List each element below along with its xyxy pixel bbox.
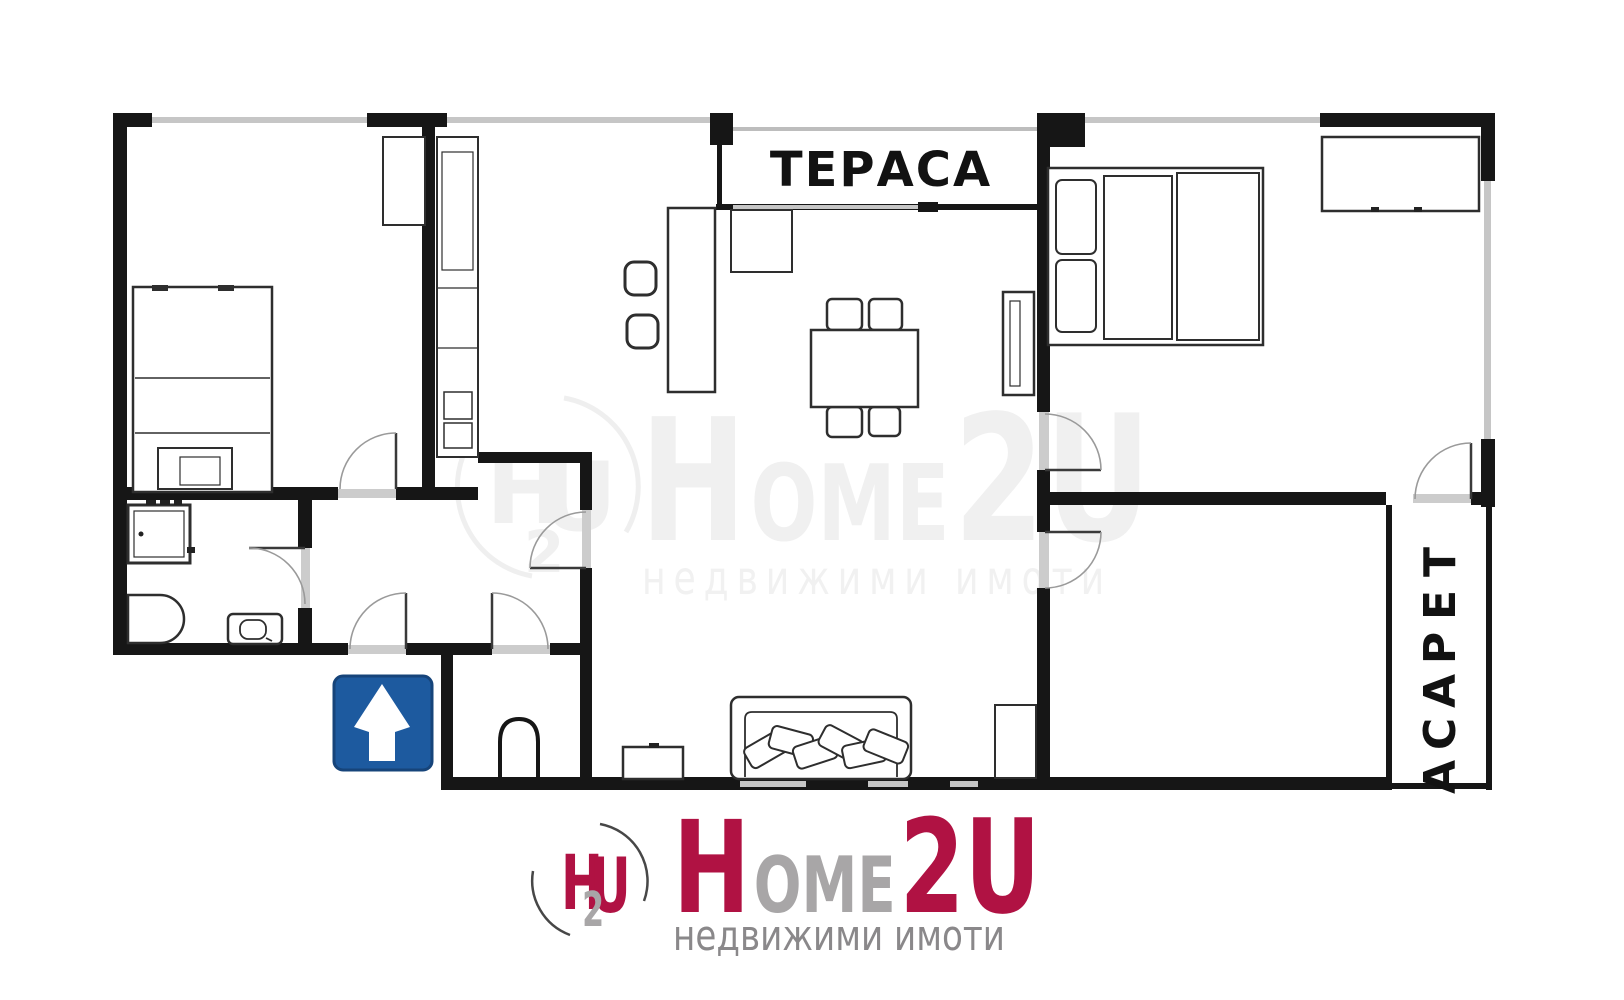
brand-logo: H U 2 H OME 2U недвижими имоти [532, 791, 1040, 960]
wall-top-seg2 [367, 113, 447, 127]
terrace-right-wall-left [1386, 505, 1392, 790]
logo-mark: H U 2 [532, 824, 647, 938]
wall-terrace-door-block [1471, 492, 1493, 505]
wall-bath-bottom [113, 643, 348, 655]
svg-text:Р: Р [1415, 632, 1466, 664]
logo-tagline: недвижими имоти [673, 911, 1005, 960]
bar-stool-2 [627, 315, 658, 348]
svg-text:С: С [1415, 718, 1466, 750]
window-bottom-1 [740, 781, 806, 787]
side-table [623, 747, 683, 779]
wall-right-divider-mid [1037, 470, 1050, 532]
wall-right-rooms-divider [1050, 492, 1386, 505]
wall-right-upper [1481, 113, 1495, 181]
terrace-sliding-door [733, 205, 918, 209]
radiator [995, 705, 1036, 778]
wall-hall-living-upper [580, 452, 592, 510]
wall-hall-bottom-right [550, 643, 592, 655]
terrace-top-label: ТЕРАСА [770, 142, 992, 198]
wall-bath-divider-lower [298, 608, 312, 643]
chair [869, 407, 900, 436]
chair [827, 299, 862, 330]
svg-text:А: А [1415, 674, 1466, 708]
terrace-top: ТЕРАСА [716, 142, 1037, 272]
dining-furniture [811, 299, 918, 437]
wall-bottom [441, 777, 1391, 790]
wardrobe-left-bedroom [383, 137, 425, 225]
terrace-open-panel [731, 210, 792, 272]
wardrobe-right-bedroom [1322, 137, 1479, 211]
chair [869, 299, 902, 330]
sofa [731, 697, 911, 779]
door-closet [348, 593, 406, 654]
door-bathroom [249, 548, 310, 608]
wall-top-terrace-left-block [710, 113, 733, 145]
bar-stool-1 [625, 262, 656, 295]
wall-top-seg3 [1320, 113, 1495, 127]
pillow [1056, 260, 1096, 332]
right-bedroom-furniture [1048, 137, 1479, 345]
dining-table [811, 330, 918, 407]
kitchen-island [668, 208, 715, 392]
door-left-bedroom [338, 433, 396, 498]
window-bottom-3 [950, 781, 978, 787]
window-kitchen [447, 117, 710, 123]
wall-foyer-left [441, 643, 453, 790]
window-bedroom-left [152, 117, 367, 123]
wall-bedroom-bottom-right [396, 487, 478, 500]
terrace-right-label: Т Е Р А С А [1415, 547, 1466, 794]
watermark-mark-2: 2 [524, 518, 564, 586]
kitchen-sink [444, 392, 472, 419]
terrace-balustrade-post [918, 202, 938, 212]
svg-text:Т: Т [1415, 547, 1466, 577]
door-terrace-right [1413, 443, 1471, 503]
bathtub [128, 595, 184, 643]
terrace-right: Т Е Р А С А [1386, 505, 1492, 794]
terrace-right-wall-right [1486, 507, 1492, 790]
svg-text:Е: Е [1415, 590, 1466, 620]
wall-hall-living-lower [580, 568, 592, 777]
entrance-arch [500, 719, 538, 777]
wall-left [113, 113, 127, 655]
wall-nook-top [478, 452, 592, 463]
chair [827, 407, 862, 437]
svg-text:А: А [1415, 760, 1466, 794]
bathroom-fixtures [128, 500, 282, 644]
left-bedroom-furniture [133, 137, 425, 492]
terrace-top-outer-line [733, 127, 1037, 131]
wall-right-divider-lower [1037, 588, 1050, 777]
floorplan-canvas: H U 2 H OME 2U недвижими имоти [0, 0, 1624, 1000]
logo-mark-2: 2 [582, 881, 604, 938]
wall-bath-divider-upper [298, 500, 312, 548]
window-bottom-2 [868, 781, 908, 787]
window-right [1484, 181, 1491, 439]
pillow [1056, 180, 1096, 254]
terrace-top-left-edge [717, 145, 722, 207]
door-foyer [492, 593, 550, 654]
one-way-arrow-sign [334, 676, 432, 770]
window-bedroom-right [1085, 117, 1320, 123]
